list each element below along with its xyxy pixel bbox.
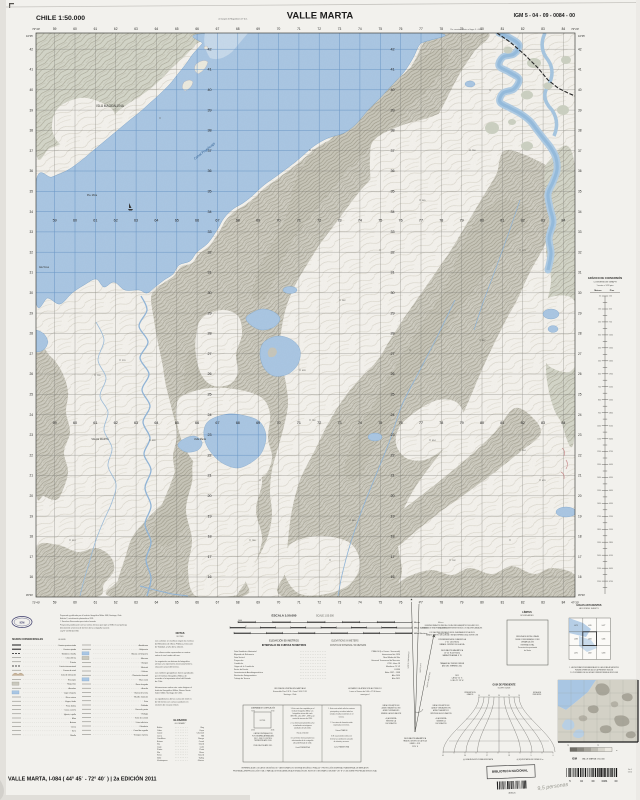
svg-text:403121: 403121 [508,793,516,795]
svg-text:33: 33 [29,230,33,234]
svg-text:20: 20 [578,494,582,498]
svg-text:CHILE 1:50.000: CHILE 1:50.000 [36,15,85,22]
svg-text:SCALE 1:50.000: SCALE 1:50.000 [316,615,334,618]
svg-text:IGM: IGM [572,757,577,761]
svg-text:NOTAS: NOTAS [176,631,185,635]
svg-text:Bahía: Bahía [157,727,163,729]
svg-text:30: 30 [578,291,582,295]
svg-text:82: 82 [521,601,525,605]
svg-text:24: 24 [578,413,582,417]
svg-text:67: 67 [216,601,220,605]
svg-text:Roca ahogada: Roca ahogada [136,684,149,686]
svg-text:18: 18 [578,535,582,539]
svg-text:Pies: Pies [610,290,615,292]
svg-text:81: 81 [501,27,505,31]
svg-text:34: 34 [29,210,33,214]
svg-text:77: 77 [419,27,423,31]
svg-text:45°00': 45°00' [26,594,34,597]
svg-text:79: 79 [460,27,464,31]
svg-text:64: 64 [155,601,159,605]
svg-text:36: 36 [578,169,582,173]
svg-text:0084: 0084 [602,779,608,783]
svg-text:71: 71 [297,27,301,31]
svg-text:84: 84 [562,601,566,605]
svg-text:VALLE MARTA, I-084 ( 44° 45´ -: VALLE MARTA, I-084 ( 44° 45´ - 72° 40´ )… [8,775,157,783]
svg-text:2011: 2011 [455,675,459,677]
svg-text:27: 27 [29,352,33,356]
svg-text:83: 83 [541,601,545,605]
svg-text:41: 41 [29,68,33,72]
svg-text:GLOSARIO: GLOSARIO [173,719,186,722]
svg-text:18: 18 [29,535,33,539]
svg-text:19: 19 [29,514,33,518]
svg-text:66: 66 [195,27,199,31]
svg-text:28: 28 [578,332,582,336]
svg-text:37: 37 [578,149,582,153]
svg-text:38: 38 [29,129,33,133]
svg-text:59: 59 [53,27,57,31]
svg-text:66: 66 [195,601,199,605]
svg-text:39: 39 [578,108,582,112]
svg-text:59: 59 [53,601,57,605]
svg-text:HOJAS ADYACENTES: HOJAS ADYACENTES [576,604,601,607]
svg-text:Island: Island [199,744,204,746]
svg-text:ELEVACIÓN EN METROS: ELEVACIÓN EN METROS [269,640,299,643]
svg-text:21: 21 [578,474,582,478]
svg-text:0.9996: 0.9996 [394,669,400,671]
svg-text:73: 73 [338,601,342,605]
svg-text:22: 22 [29,453,33,457]
svg-text:69: 69 [256,601,260,605]
svg-text:31: 31 [578,271,582,275]
svg-text:17: 17 [578,555,582,559]
svg-text:60: 60 [73,601,77,605]
svg-text:LEGEND: LEGEND [58,639,66,641]
svg-text:82: 82 [521,27,525,31]
svg-text:37: 37 [29,149,33,153]
svg-text:45°00': 45°00' [578,594,586,597]
svg-text:63: 63 [134,601,138,605]
svg-text:Channel: Channel [197,733,205,735]
svg-text:22: 22 [578,453,582,457]
svg-text:27: 27 [578,352,582,356]
svg-text:LÍMITES: LÍMITES [522,611,532,614]
svg-text:81: 81 [501,601,505,605]
svg-text:25: 25 [578,393,582,397]
svg-text:Bay: Bay [201,727,204,729]
svg-text:62: 62 [114,27,118,31]
svg-text:42: 42 [578,47,582,51]
svg-text:70: 70 [277,601,281,605]
svg-text:★: ★ [410,598,413,602]
svg-text:Muelle: Muelle [70,735,76,737]
svg-text:29: 29 [29,311,33,315]
svg-text:Muelle, malecón: Muelle, malecón [134,697,148,699]
svg-text:16: 16 [578,575,582,579]
svg-text:28: 28 [29,332,33,336]
svg-text:74: 74 [358,27,362,31]
svg-text:84: 84 [562,27,566,31]
svg-text:INTERVALO DE CURVAS 50 METROS: INTERVALO DE CURVAS 50 METROS [262,644,307,647]
svg-text:40: 40 [29,88,33,92]
svg-text:de Chile.: de Chile. [155,681,163,683]
svg-text:40: 40 [578,88,582,92]
svg-text:UTM - Huso 18: UTM - Huso 18 [387,663,400,665]
svg-text:Valley: Valley [199,757,204,759]
svg-text:83: 83 [541,27,545,31]
svg-text:72°40': 72°40' [32,601,40,605]
svg-text:Canal: Canal [157,733,163,735]
svg-text:61: 61 [94,601,98,605]
svg-text:75: 75 [378,601,382,605]
svg-text:35: 35 [29,190,33,194]
svg-text:Lago o laguna: Lago o laguna [64,692,77,694]
svg-text:24: 24 [29,413,33,417]
svg-text:67: 67 [216,27,220,31]
svg-text:35: 35 [578,190,582,194]
svg-text:33: 33 [578,230,582,234]
svg-text:74: 74 [358,601,362,605]
svg-text:69: 69 [256,27,260,31]
svg-text:Poblado: Poblado [141,705,148,707]
svg-text:65: 65 [175,27,179,31]
svg-text:41: 41 [578,68,582,72]
svg-text:23: 23 [29,433,33,437]
svg-text:1: 1 [246,626,247,628]
svg-text:20: 20 [29,494,33,498]
svg-text:38: 38 [578,129,582,133]
svg-text:31: 31 [29,271,33,275]
svg-text:16: 16 [29,575,33,579]
svg-text:21: 21 [29,474,33,478]
svg-text:42: 42 [29,47,33,51]
svg-text:78: 78 [440,601,444,605]
svg-text:1000: 1000 [238,620,242,622]
svg-text:Sound: Sound [198,755,204,757]
svg-text:68: 68 [236,27,240,31]
svg-text:32: 32 [29,250,33,254]
svg-text:Refugio: Refugio [141,713,148,715]
svg-text:17: 17 [29,555,33,559]
svg-text:72°40': 72°40' [32,27,40,31]
svg-text:73: 73 [338,27,342,31]
svg-text:25: 25 [29,393,33,397]
svg-text:63: 63 [134,27,138,31]
svg-text:Bosque: Bosque [142,663,148,665]
svg-text:36: 36 [29,169,33,173]
svg-text:80: 80 [480,27,484,31]
svg-text:65: 65 [175,601,179,605]
svg-text:60: 60 [73,27,77,31]
svg-text:39: 39 [29,108,33,112]
svg-text:72: 72 [317,601,321,605]
svg-text:34: 34 [578,210,582,214]
svg-text:www.igm.cl: www.igm.cl [361,694,371,696]
svg-text:30: 30 [29,291,33,295]
svg-text:72: 72 [317,27,321,31]
svg-text:Iglesia, capilla: Iglesia, capilla [64,714,77,716]
svg-text:64: 64 [155,27,159,31]
svg-text:19: 19 [578,514,582,518]
svg-text:IGM 5 - 04 - 09 - 0084 - 00: IGM 5 - 04 - 09 - 0084 - 00 [514,13,576,19]
svg-text:ESCALA 1:50.000: ESCALA 1:50.000 [272,614,297,618]
svg-text:68: 68 [236,601,240,605]
svg-text:70: 70 [277,27,281,31]
svg-text:26: 26 [578,372,582,376]
svg-text:76: 76 [399,27,403,31]
svg-text:44°45': 44°45' [26,35,34,38]
svg-text:80: 80 [480,601,484,605]
svg-text:SLOPE GUIDE: SLOPE GUIDE [498,688,512,690]
svg-text:VALLE MARTA: VALLE MARTA [287,11,354,22]
svg-text:75: 75 [378,27,382,31]
svg-text:29: 29 [578,311,582,315]
svg-text:Range: Range [198,738,205,740]
svg-text:Lunes a Viernes de 9:00 a 17:3: Lunes a Viernes de 9:00 a 17:30 horas [350,691,381,693]
svg-text:26: 26 [29,372,33,376]
svg-text:61: 61 [94,27,98,31]
svg-text:NOTES: NOTES [177,636,185,638]
svg-text:44°45': 44°45' [578,35,586,38]
svg-text:71: 71 [297,601,301,605]
svg-text:23: 23 [578,433,582,437]
svg-text:72°20': 72°20' [571,27,579,31]
svg-text:76: 76 [399,601,403,605]
svg-text:IGM: IGM [20,621,25,625]
svg-text:79: 79 [460,601,464,605]
svg-text:32: 32 [578,250,582,254]
svg-text:62: 62 [114,601,118,605]
svg-text:78: 78 [440,27,444,31]
